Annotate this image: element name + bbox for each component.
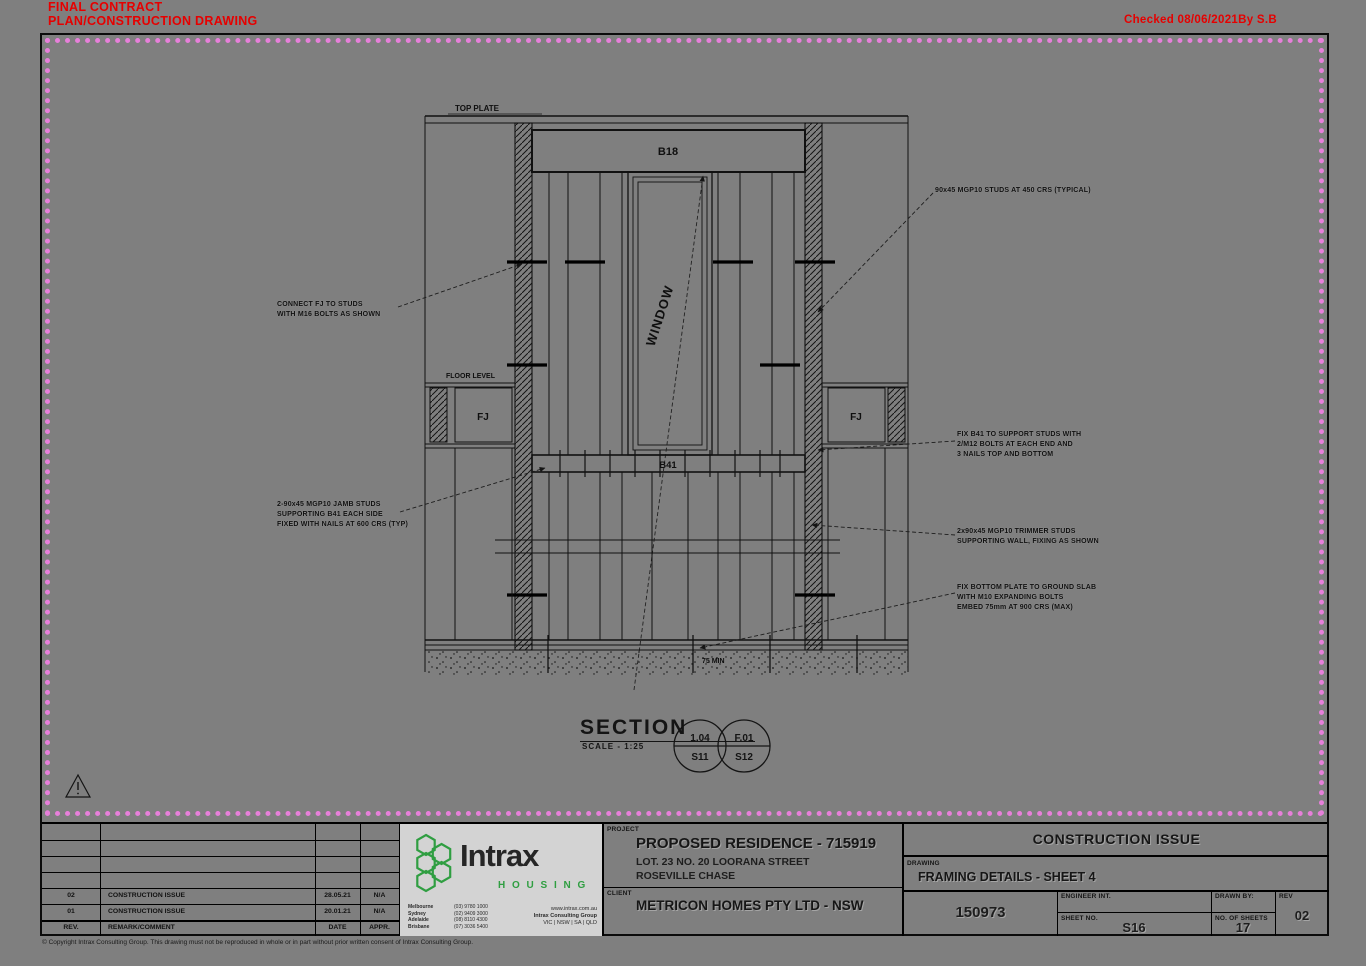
note-fix-b41: FIX B41 TO SUPPORT STUDS WITH2/M12 BOLTS… xyxy=(957,430,1081,459)
client-label: CLIENT xyxy=(607,890,632,897)
note-trimmer-studs: 2x90x45 MGP10 TRIMMER STUDSSUPPORTING WA… xyxy=(957,527,1099,547)
lower-blocking-lines xyxy=(495,540,840,553)
engineer-label: ENGINEER INT. xyxy=(1061,893,1111,900)
rev-header-remark: REMARK/COMMENT xyxy=(108,924,175,931)
project-address1: LOT. 23 NO. 20 LOORANA STREET xyxy=(636,856,809,868)
rev-row-02-appr: N/A xyxy=(360,892,399,899)
note-jamb-studs: 2-90x45 MGP10 JAMB STUDSSUPPORTING B41 E… xyxy=(277,500,408,529)
intrax-web-info: www.intrax.com.au Intrax Consulting Grou… xyxy=(534,906,597,927)
final-contract-stamp: FINAL CONTRACT xyxy=(48,0,162,14)
sill-beam-label: B41 xyxy=(659,460,677,471)
bubble2-bottom: S12 xyxy=(735,752,753,763)
intrax-phones: (03) 9780 1000(02) 9409 3000 (08) 8110 4… xyxy=(454,904,488,930)
issue-cell: CONSTRUCTION ISSUE DRAWING FRAMING DETAI… xyxy=(902,824,1329,936)
rev-row-01-remark: CONSTRUCTION ISSUE xyxy=(108,908,185,915)
client-name: METRICON HOMES PTY LTD - NSW xyxy=(636,898,864,913)
bubble1-bottom: S11 xyxy=(691,752,709,763)
drawn-by-label: DRAWN BY: xyxy=(1215,893,1254,900)
note-bottom-plate: FIX BOTTOM PLATE TO GROUND SLABWITH M10 … xyxy=(957,583,1096,612)
project-name: PROPOSED RESIDENCE - 715919 xyxy=(636,835,876,852)
window-label: WINDOW xyxy=(643,283,677,348)
warning-triangle-icon xyxy=(66,775,90,797)
rev-row-02-rev: 02 xyxy=(42,892,100,899)
window-leader-line xyxy=(634,176,703,690)
floor-band xyxy=(425,383,908,640)
rev-row-01-appr: N/A xyxy=(360,908,399,915)
rev-row-02-remark: CONSTRUCTION ISSUE xyxy=(108,892,185,899)
top-plate-label: TOP PLATE xyxy=(455,104,500,113)
no-of-sheets-value: 17 xyxy=(1211,920,1275,935)
intrax-hexagon-icon xyxy=(410,832,456,896)
rev-value: 02 xyxy=(1275,908,1329,923)
section-title: SECTION xyxy=(580,716,755,742)
right-joist-section xyxy=(888,388,905,442)
intrax-logo-cell: Intrax H O U S I N G MelbourneSydney Ade… xyxy=(400,824,602,936)
construction-issue-header: CONSTRUCTION ISSUE xyxy=(904,831,1329,847)
intrax-wordmark: Intrax xyxy=(460,838,538,874)
drawing-name: FRAMING DETAILS - SHEET 4 xyxy=(918,870,1096,884)
revision-table: 02 CONSTRUCTION ISSUE 28.05.21 N/A 01 CO… xyxy=(42,824,401,936)
issue-header-row: CONSTRUCTION ISSUE xyxy=(904,824,1329,857)
project-cell: PROJECT PROPOSED RESIDENCE - 715919 LOT.… xyxy=(602,824,904,936)
intrax-division: H O U S I N G xyxy=(498,880,587,891)
rev-row-02-date: 28.05.21 xyxy=(315,892,360,899)
header-beam-label: B18 xyxy=(658,146,678,158)
right-king-stud xyxy=(805,123,822,650)
slab-note-label: 75 MIN xyxy=(702,658,725,665)
rev-row-01-date: 20.01.21 xyxy=(315,908,360,915)
drawing-label: DRAWING xyxy=(907,860,940,867)
window-frame xyxy=(628,172,712,455)
sheet-no-value: S16 xyxy=(1057,920,1211,935)
framing-section-drawing: TOP PLATE B18 WINDOW xyxy=(42,35,1327,818)
fj-right-label: FJ xyxy=(850,412,862,423)
lower-studs xyxy=(549,472,794,640)
rev-label: REV xyxy=(1279,893,1293,900)
fj-left-label: FJ xyxy=(477,412,489,423)
project-address2: ROSEVILLE CHASE xyxy=(636,870,735,882)
title-block: 02 CONSTRUCTION ISSUE 28.05.21 N/A 01 CO… xyxy=(42,822,1327,936)
rev-header-rev: REV. xyxy=(42,924,100,931)
ground-hatch xyxy=(428,650,908,676)
section-scale: SCALE - 1:25 xyxy=(582,742,644,751)
nogging-bars xyxy=(507,262,835,595)
copyright-note: © Copyright Intrax Consulting Group. Thi… xyxy=(42,939,473,946)
drawing-sheet: TOP PLATE B18 WINDOW xyxy=(40,33,1329,936)
intrax-offices: MelbourneSydney AdelaideBrisbane xyxy=(408,904,433,930)
left-king-stud xyxy=(515,123,532,650)
job-number: 150973 xyxy=(904,904,1057,921)
floor-level-label: FLOOR LEVEL xyxy=(446,373,496,380)
checked-stamp: Checked 08/06/2021By S.B xyxy=(1124,14,1277,26)
note-studs: 90x45 MGP10 STUDS AT 450 CRS (TYPICAL) xyxy=(935,186,1091,196)
top-plate-lines xyxy=(425,114,908,123)
rev-header-appr: APPR. xyxy=(360,924,399,931)
note-connect-fj: CONNECT FJ TO STUDSWITH M16 BOLTS AS SHO… xyxy=(277,300,380,320)
rev-header-date: DATE xyxy=(315,924,360,931)
plan-construction-stamp: PLAN/CONSTRUCTION DRAWING xyxy=(48,14,258,28)
left-joist-section xyxy=(430,388,447,442)
bottom-plate xyxy=(425,640,908,650)
project-label: PROJECT xyxy=(607,826,639,833)
rev-row-01-rev: 01 xyxy=(42,908,100,915)
